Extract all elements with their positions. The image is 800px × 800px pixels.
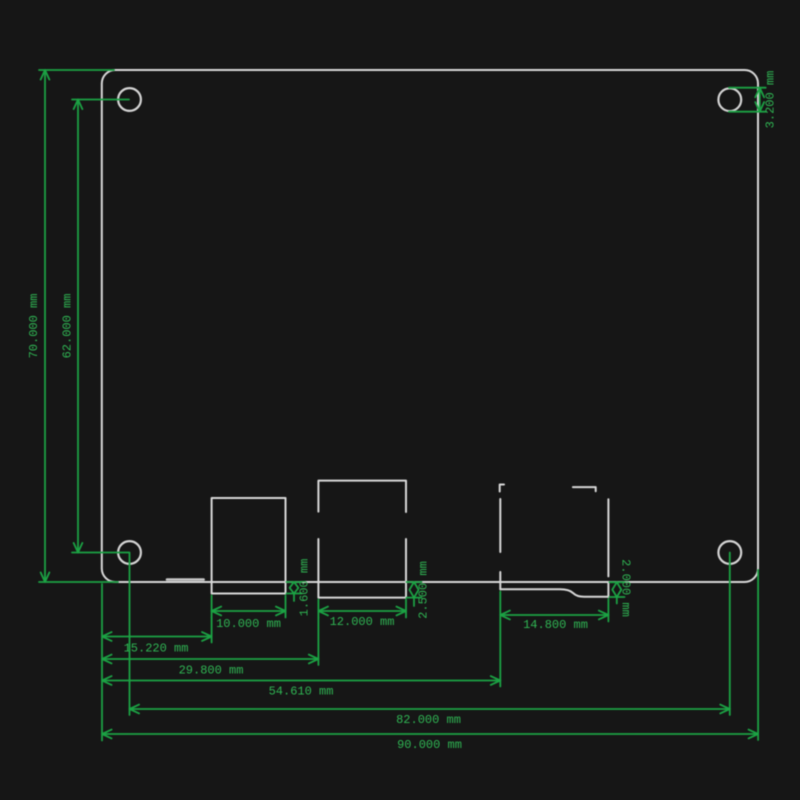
svg-text:90.000 mm: 90.000 mm (397, 738, 462, 752)
svg-text:70.000 mm: 70.000 mm (27, 294, 41, 359)
svg-text:2.000 mm: 2.000 mm (619, 559, 633, 617)
svg-text:3.200 mm: 3.200 mm (763, 71, 777, 129)
svg-text:82.000 mm: 82.000 mm (396, 713, 461, 727)
svg-text:10.000 mm: 10.000 mm (216, 617, 281, 631)
svg-text:62.000 mm: 62.000 mm (61, 294, 75, 359)
svg-text:2.500 mm: 2.500 mm (417, 561, 431, 619)
svg-text:54.610 mm: 54.610 mm (269, 685, 334, 699)
svg-text:29.800 mm: 29.800 mm (179, 664, 244, 678)
svg-text:14.800 mm: 14.800 mm (523, 618, 588, 632)
svg-text:1.600 mm: 1.600 mm (298, 559, 312, 617)
svg-text:12.000 mm: 12.000 mm (330, 615, 395, 629)
svg-text:15.220 mm: 15.220 mm (124, 642, 189, 656)
